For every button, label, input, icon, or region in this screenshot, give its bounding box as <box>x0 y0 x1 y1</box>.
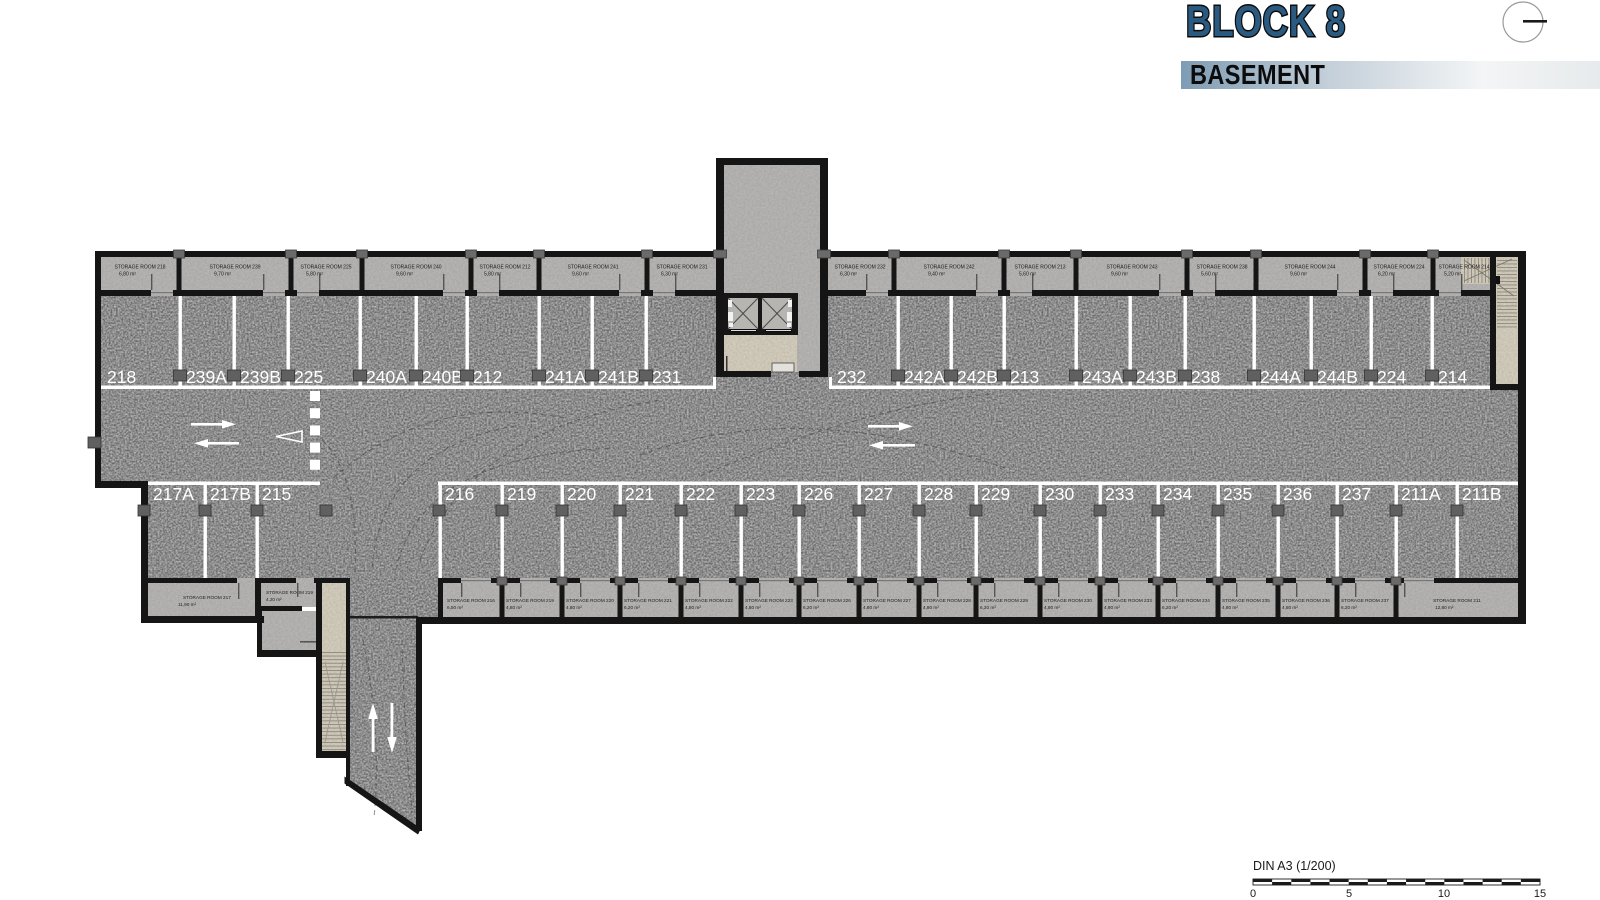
svg-text:STORAGE ROOM 217: STORAGE ROOM 217 <box>183 595 231 600</box>
svg-text:6,80 m²: 6,80 m² <box>119 272 136 278</box>
svg-text:4,80 m²: 4,80 m² <box>685 605 701 610</box>
svg-text:234: 234 <box>1163 484 1192 504</box>
svg-text:241B: 241B <box>598 367 639 387</box>
svg-text:STORAGE ROOM 240: STORAGE ROOM 240 <box>390 265 441 271</box>
svg-text:214: 214 <box>1438 367 1467 387</box>
svg-text:STORAGE ROOM 220: STORAGE ROOM 220 <box>566 598 614 603</box>
svg-text:239B: 239B <box>240 367 281 387</box>
svg-text:15: 15 <box>1534 888 1546 900</box>
svg-text:244B: 244B <box>1317 367 1358 387</box>
svg-text:5,80 m²: 5,80 m² <box>484 272 501 278</box>
svg-text:211B: 211B <box>1462 484 1502 504</box>
svg-text:243A: 243A <box>1082 367 1123 387</box>
svg-text:228: 228 <box>924 484 953 504</box>
svg-text:231: 231 <box>652 367 681 387</box>
svg-text:4,80 m²: 4,80 m² <box>863 605 879 610</box>
svg-text:217A: 217A <box>153 484 194 504</box>
svg-text:STORAGE ROOM 235: STORAGE ROOM 235 <box>1222 598 1270 603</box>
svg-text:STORAGE ROOM 212: STORAGE ROOM 212 <box>479 265 530 271</box>
svg-text:BLOCK 8: BLOCK 8 <box>1186 0 1346 46</box>
svg-text:BASEMENT: BASEMENT <box>1190 60 1325 90</box>
svg-text:240B: 240B <box>422 367 463 387</box>
svg-text:232: 232 <box>837 367 866 387</box>
svg-text:STORAGE ROOM 228: STORAGE ROOM 228 <box>923 598 971 603</box>
svg-text:242B: 242B <box>957 367 998 387</box>
svg-text:9,40 m²: 9,40 m² <box>928 272 945 278</box>
svg-text:243B: 243B <box>1136 367 1177 387</box>
svg-text:4,80 m²: 4,80 m² <box>566 605 582 610</box>
svg-text:233: 233 <box>1105 484 1134 504</box>
svg-text:4,80 m²: 4,80 m² <box>1044 605 1060 610</box>
svg-text:218: 218 <box>107 367 136 387</box>
svg-text:212: 212 <box>473 367 502 387</box>
svg-text:226: 226 <box>804 484 833 504</box>
svg-text:STORAGE ROOM 219: STORAGE ROOM 219 <box>506 598 554 603</box>
svg-text:STORAGE ROOM 237: STORAGE ROOM 237 <box>1341 598 1389 603</box>
svg-text:9,60 m²: 9,60 m² <box>572 272 589 278</box>
svg-text:220: 220 <box>567 484 596 504</box>
svg-text:DIN A3 (1/200): DIN A3 (1/200) <box>1253 859 1336 873</box>
svg-text:216: 216 <box>445 484 474 504</box>
svg-text:STORAGE ROOM 214: STORAGE ROOM 214 <box>1438 265 1489 271</box>
svg-text:4,80 m²: 4,80 m² <box>1222 605 1238 610</box>
svg-text:244A: 244A <box>1260 367 1301 387</box>
svg-text:213: 213 <box>1010 367 1039 387</box>
svg-text:6,20 m²: 6,20 m² <box>1378 272 1395 278</box>
svg-text:6,20 m²: 6,20 m² <box>1341 605 1357 610</box>
svg-text:STORAGE ROOM 211: STORAGE ROOM 211 <box>1433 598 1481 603</box>
svg-text:6,20 m²: 6,20 m² <box>803 605 819 610</box>
svg-text:12,80 m²: 12,80 m² <box>1435 605 1454 610</box>
svg-text:4,80 m²: 4,80 m² <box>1104 605 1120 610</box>
svg-text:9,70 m²: 9,70 m² <box>214 272 231 278</box>
svg-text:0: 0 <box>1250 888 1256 900</box>
svg-text:STORAGE ROOM 242: STORAGE ROOM 242 <box>923 265 974 271</box>
svg-text:235: 235 <box>1223 484 1252 504</box>
svg-text:242A: 242A <box>904 367 945 387</box>
svg-text:STORAGE ROOM 216: STORAGE ROOM 216 <box>447 598 495 603</box>
svg-text:6,20 m²: 6,20 m² <box>980 605 996 610</box>
svg-text:211A: 211A <box>1401 484 1441 504</box>
svg-text:215: 215 <box>262 484 291 504</box>
svg-text:229: 229 <box>981 484 1010 504</box>
svg-text:STORAGE ROOM 231: STORAGE ROOM 231 <box>656 265 707 271</box>
svg-text:224: 224 <box>1377 367 1406 387</box>
svg-text:STORAGE ROOM 230: STORAGE ROOM 230 <box>1044 598 1092 603</box>
svg-text:STORAGE ROOM 229: STORAGE ROOM 229 <box>980 598 1028 603</box>
svg-text:STORAGE ROOM 234: STORAGE ROOM 234 <box>1162 598 1210 603</box>
svg-text:6,50 m²: 6,50 m² <box>447 605 463 610</box>
svg-text:4,80 m²: 4,80 m² <box>745 605 761 610</box>
svg-text:5: 5 <box>1346 888 1352 900</box>
svg-text:STORAGE ROOM 213: STORAGE ROOM 213 <box>1014 265 1065 271</box>
svg-text:5,80 m²: 5,80 m² <box>306 272 323 278</box>
svg-text:225: 225 <box>294 367 323 387</box>
svg-text:238: 238 <box>1191 367 1220 387</box>
svg-text:11,90 m²: 11,90 m² <box>178 602 197 607</box>
svg-text:5,20 m²: 5,20 m² <box>1444 272 1461 278</box>
svg-text:10: 10 <box>1438 888 1450 900</box>
svg-text:STORAGE ROOM 233: STORAGE ROOM 233 <box>1104 598 1152 603</box>
svg-text:9,60 m²: 9,60 m² <box>1111 272 1128 278</box>
svg-text:STORAGE ROOM 219: STORAGE ROOM 219 <box>266 590 313 595</box>
svg-text:STORAGE ROOM 225: STORAGE ROOM 225 <box>300 265 351 271</box>
svg-text:6,20 m²: 6,20 m² <box>624 605 640 610</box>
svg-text:221: 221 <box>625 484 654 504</box>
svg-text:4,80 m²: 4,80 m² <box>923 605 939 610</box>
svg-text:STORAGE ROOM 241: STORAGE ROOM 241 <box>567 265 618 271</box>
svg-text:236: 236 <box>1283 484 1312 504</box>
svg-text:237: 237 <box>1342 484 1371 504</box>
svg-text:STORAGE ROOM 226: STORAGE ROOM 226 <box>803 598 851 603</box>
svg-text:239A: 239A <box>186 367 227 387</box>
svg-text:STORAGE ROOM 224: STORAGE ROOM 224 <box>1373 265 1424 271</box>
svg-text:4,80 m²: 4,80 m² <box>1282 605 1298 610</box>
svg-text:STORAGE ROOM 223: STORAGE ROOM 223 <box>745 598 793 603</box>
svg-text:STORAGE ROOM 236: STORAGE ROOM 236 <box>1282 598 1330 603</box>
svg-text:6,20 m²: 6,20 m² <box>1162 605 1178 610</box>
svg-text:9,60 m²: 9,60 m² <box>1290 272 1307 278</box>
svg-text:STORAGE ROOM 232: STORAGE ROOM 232 <box>834 265 885 271</box>
svg-text:5,60 m²: 5,60 m² <box>1019 272 1036 278</box>
svg-text:STORAGE ROOM 244: STORAGE ROOM 244 <box>1284 265 1335 271</box>
svg-text:6,30 m²: 6,30 m² <box>840 272 857 278</box>
svg-text:STORAGE ROOM 222: STORAGE ROOM 222 <box>685 598 733 603</box>
svg-text:223: 223 <box>746 484 775 504</box>
svg-text:222: 222 <box>686 484 715 504</box>
svg-text:240A: 240A <box>366 367 407 387</box>
svg-text:STORAGE ROOM 239: STORAGE ROOM 239 <box>209 265 260 271</box>
svg-text:STORAGE ROOM 218: STORAGE ROOM 218 <box>114 265 165 271</box>
svg-text:STORAGE ROOM 243: STORAGE ROOM 243 <box>1106 265 1157 271</box>
svg-text:4,80 m²: 4,80 m² <box>506 605 522 610</box>
svg-text:STORAGE ROOM 227: STORAGE ROOM 227 <box>863 598 911 603</box>
svg-text:STORAGE ROOM 238: STORAGE ROOM 238 <box>1196 265 1247 271</box>
svg-text:9,60 m²: 9,60 m² <box>396 272 413 278</box>
svg-text:230: 230 <box>1045 484 1074 504</box>
svg-text:217B: 217B <box>210 484 251 504</box>
svg-text:4,20 m²: 4,20 m² <box>266 597 282 602</box>
svg-text:227: 227 <box>864 484 893 504</box>
svg-text:241A: 241A <box>545 367 586 387</box>
svg-text:STORAGE ROOM 221: STORAGE ROOM 221 <box>624 598 672 603</box>
svg-text:219: 219 <box>507 484 536 504</box>
